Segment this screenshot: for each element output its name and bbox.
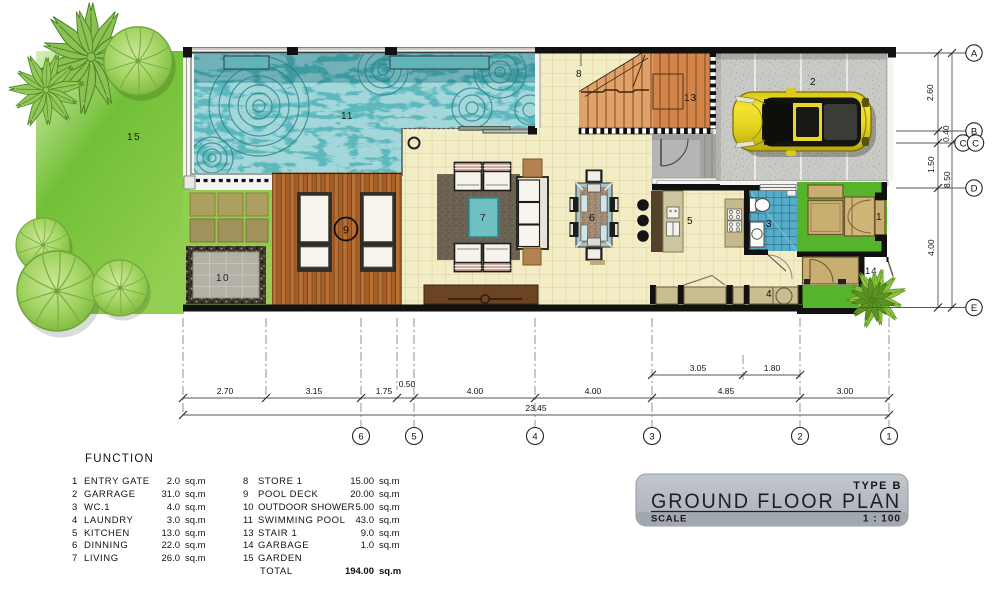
- svg-text:2: 2: [810, 77, 816, 88]
- svg-text:sq.m: sq.m: [185, 502, 206, 513]
- svg-text:D: D: [971, 184, 978, 195]
- svg-text:sq.m: sq.m: [185, 476, 206, 487]
- svg-text:5.00: 5.00: [356, 502, 375, 513]
- svg-text:A: A: [971, 49, 978, 60]
- svg-text:STAIR 1: STAIR 1: [258, 528, 297, 539]
- svg-text:DINNING: DINNING: [84, 540, 128, 551]
- svg-text:1.50: 1.50: [926, 156, 936, 173]
- svg-text:15: 15: [127, 132, 141, 143]
- svg-text:1: 1: [876, 212, 882, 223]
- svg-text:sq.m: sq.m: [185, 528, 206, 539]
- svg-text:sq.m: sq.m: [185, 515, 206, 526]
- svg-text:FUNCTION: FUNCTION: [85, 453, 154, 465]
- svg-text:sq.m: sq.m: [379, 476, 400, 487]
- svg-text:GARBAGE: GARBAGE: [258, 540, 309, 551]
- svg-text:26.0: 26.0: [162, 553, 181, 564]
- svg-text:4.00: 4.00: [585, 386, 602, 396]
- svg-text:7: 7: [72, 553, 77, 564]
- svg-text:14: 14: [243, 540, 254, 551]
- svg-text:1.80: 1.80: [764, 363, 781, 373]
- svg-text:sq.m: sq.m: [185, 489, 206, 500]
- svg-text:7: 7: [480, 213, 486, 224]
- svg-text:23.45: 23.45: [525, 403, 547, 413]
- svg-text:13: 13: [684, 93, 697, 104]
- svg-text:1 : 100: 1 : 100: [863, 514, 901, 525]
- svg-text:GROUND FLOOR PLAN: GROUND FLOOR PLAN: [651, 490, 901, 513]
- svg-text:11: 11: [341, 111, 353, 122]
- svg-text:WC.1: WC.1: [84, 502, 110, 513]
- svg-text:0.40: 0.40: [941, 125, 951, 142]
- svg-text:4.00: 4.00: [926, 239, 936, 256]
- svg-text:KITCHEN: KITCHEN: [84, 528, 130, 539]
- svg-text:13: 13: [243, 528, 254, 539]
- svg-text:5: 5: [411, 432, 416, 443]
- svg-text:5: 5: [72, 528, 77, 539]
- svg-text:OUTDOOR SHOWER: OUTDOOR SHOWER: [258, 502, 355, 513]
- svg-text:1.75: 1.75: [376, 386, 393, 396]
- svg-text:4.00: 4.00: [467, 386, 484, 396]
- svg-text:3: 3: [72, 502, 77, 513]
- svg-text:2.70: 2.70: [217, 386, 234, 396]
- svg-text:8.50: 8.50: [942, 171, 952, 188]
- svg-text:8: 8: [243, 476, 248, 487]
- svg-text:GARDEN: GARDEN: [258, 553, 302, 564]
- svg-text:sq.m: sq.m: [379, 489, 400, 500]
- svg-text:SWIMMING POOL: SWIMMING POOL: [258, 515, 346, 526]
- svg-text:C: C: [960, 139, 967, 150]
- svg-text:1.0: 1.0: [361, 540, 374, 551]
- svg-text:2: 2: [797, 432, 802, 443]
- svg-text:sq.m: sq.m: [379, 515, 400, 526]
- svg-text:3.05: 3.05: [690, 363, 707, 373]
- svg-text:GARRAGE: GARRAGE: [84, 489, 136, 500]
- svg-text:5: 5: [687, 216, 693, 227]
- svg-text:20.00: 20.00: [350, 489, 374, 500]
- svg-text:3.0: 3.0: [167, 515, 180, 526]
- svg-text:4.0: 4.0: [167, 502, 180, 513]
- svg-text:3.15: 3.15: [306, 386, 323, 396]
- svg-text:8: 8: [576, 69, 582, 80]
- svg-text:sq.m: sq.m: [379, 528, 400, 539]
- svg-text:6: 6: [358, 432, 363, 443]
- svg-text:13.0: 13.0: [162, 528, 181, 539]
- svg-text:sq.m: sq.m: [185, 540, 206, 551]
- svg-text:4.85: 4.85: [718, 386, 735, 396]
- svg-text:11: 11: [243, 515, 253, 526]
- svg-text:1: 1: [886, 432, 891, 443]
- svg-text:15: 15: [243, 553, 254, 564]
- svg-text:B: B: [971, 127, 977, 138]
- svg-text:194.00: 194.00: [345, 566, 374, 577]
- svg-text:9.0: 9.0: [361, 528, 374, 539]
- svg-text:10: 10: [243, 502, 254, 513]
- svg-text:4: 4: [532, 432, 537, 443]
- svg-text:LAUNDRY: LAUNDRY: [84, 515, 133, 526]
- svg-text:10: 10: [216, 273, 230, 284]
- svg-text:sq.m: sq.m: [379, 540, 400, 551]
- svg-text:sq.m: sq.m: [185, 553, 206, 564]
- svg-text:0.50: 0.50: [399, 379, 416, 389]
- svg-text:STORE 1: STORE 1: [258, 476, 303, 487]
- svg-text:4: 4: [766, 289, 772, 300]
- svg-text:22.0: 22.0: [162, 540, 181, 551]
- svg-text:LIVING: LIVING: [84, 553, 119, 564]
- svg-text:TOTAL: TOTAL: [260, 566, 293, 577]
- svg-text:2.0: 2.0: [167, 476, 180, 487]
- svg-text:43.0: 43.0: [356, 515, 375, 526]
- svg-text:9: 9: [243, 489, 248, 500]
- svg-text:2.60: 2.60: [925, 84, 935, 101]
- svg-text:6: 6: [72, 540, 77, 551]
- svg-text:4: 4: [72, 515, 77, 526]
- svg-text:E: E: [971, 303, 977, 314]
- svg-text:15.00: 15.00: [350, 476, 374, 487]
- svg-text:sq.m: sq.m: [379, 566, 401, 577]
- svg-text:3: 3: [649, 432, 654, 443]
- svg-text:3: 3: [766, 219, 772, 230]
- svg-text:SCALE: SCALE: [651, 514, 687, 525]
- svg-text:sq.m: sq.m: [379, 502, 400, 513]
- svg-text:POOL DECK: POOL DECK: [258, 489, 319, 500]
- svg-text:6: 6: [589, 212, 595, 224]
- svg-text:2: 2: [72, 489, 77, 500]
- svg-text:3.00: 3.00: [837, 386, 854, 396]
- svg-text:1: 1: [72, 476, 77, 487]
- svg-text:31.0: 31.0: [162, 489, 181, 500]
- svg-text:9: 9: [343, 225, 349, 237]
- svg-text:ENTRY GATE: ENTRY GATE: [84, 476, 150, 487]
- svg-text:C: C: [972, 139, 979, 150]
